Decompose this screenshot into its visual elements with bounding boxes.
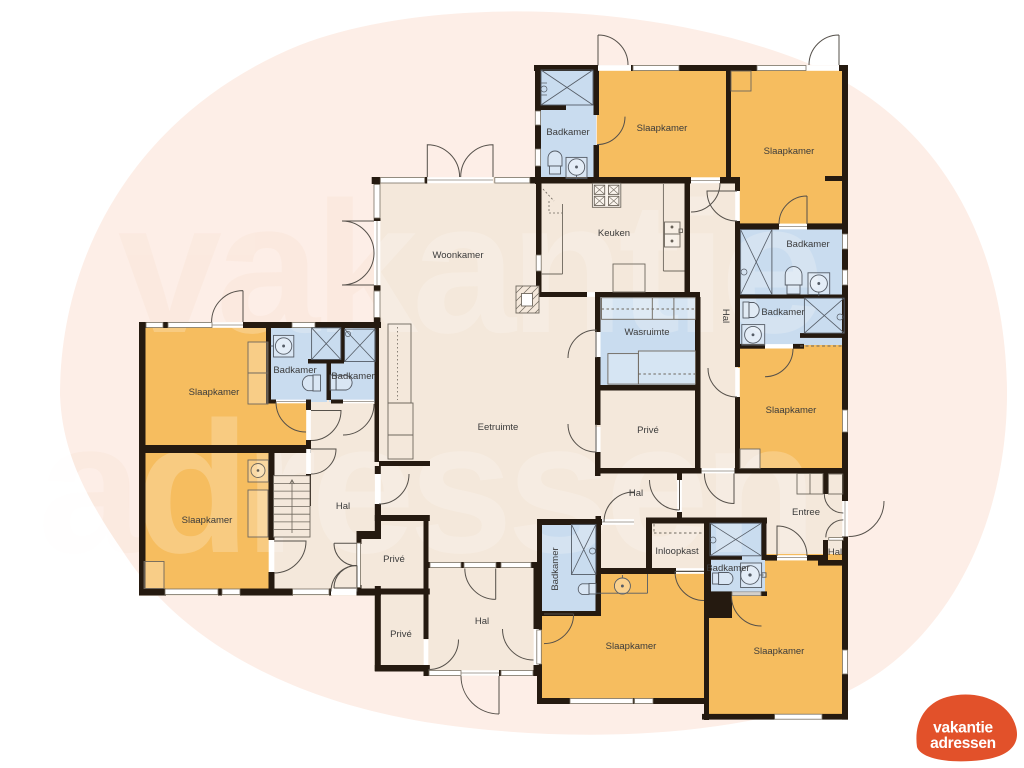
svg-text:Privé: Privé bbox=[383, 554, 405, 565]
svg-text:Hal: Hal bbox=[629, 488, 643, 499]
svg-text:Slaapkamer: Slaapkamer bbox=[637, 123, 688, 134]
svg-text:Inloopkast: Inloopkast bbox=[655, 546, 699, 557]
svg-text:Badkamer: Badkamer bbox=[761, 307, 804, 318]
svg-text:Privé: Privé bbox=[637, 425, 659, 436]
svg-text:Badkamer: Badkamer bbox=[273, 365, 316, 376]
svg-text:Privé: Privé bbox=[390, 629, 412, 640]
svg-text:Slaapkamer: Slaapkamer bbox=[754, 646, 805, 657]
svg-text:Badkamer: Badkamer bbox=[706, 563, 749, 574]
svg-text:Slaapkamer: Slaapkamer bbox=[764, 146, 815, 157]
svg-text:Hal: Hal bbox=[475, 616, 489, 627]
svg-text:Badkamer: Badkamer bbox=[786, 239, 829, 250]
svg-text:Badkamer: Badkamer bbox=[331, 371, 374, 382]
svg-text:Woonkamer: Woonkamer bbox=[432, 250, 483, 261]
svg-text:Wasruimte: Wasruimte bbox=[624, 327, 669, 338]
svg-text:vakantie: vakantie bbox=[118, 163, 818, 372]
svg-text:Badkamer: Badkamer bbox=[546, 127, 589, 138]
svg-text:adressen: adressen bbox=[930, 735, 996, 752]
svg-text:Eetruimte: Eetruimte bbox=[478, 422, 519, 433]
svg-text:Slaapkamer: Slaapkamer bbox=[766, 405, 817, 416]
svg-text:Slaapkamer: Slaapkamer bbox=[182, 515, 233, 526]
svg-text:Slaapkamer: Slaapkamer bbox=[606, 641, 657, 652]
svg-text:Hal: Hal bbox=[336, 501, 350, 512]
svg-text:vakantie: vakantie bbox=[933, 720, 993, 737]
svg-text:Hal: Hal bbox=[720, 309, 731, 323]
svg-text:Hal: Hal bbox=[828, 547, 842, 558]
svg-text:Slaapkamer: Slaapkamer bbox=[189, 387, 240, 398]
svg-text:Keuken: Keuken bbox=[598, 228, 630, 239]
svg-text:Badkamer: Badkamer bbox=[550, 547, 561, 590]
svg-text:Entree: Entree bbox=[792, 507, 820, 518]
